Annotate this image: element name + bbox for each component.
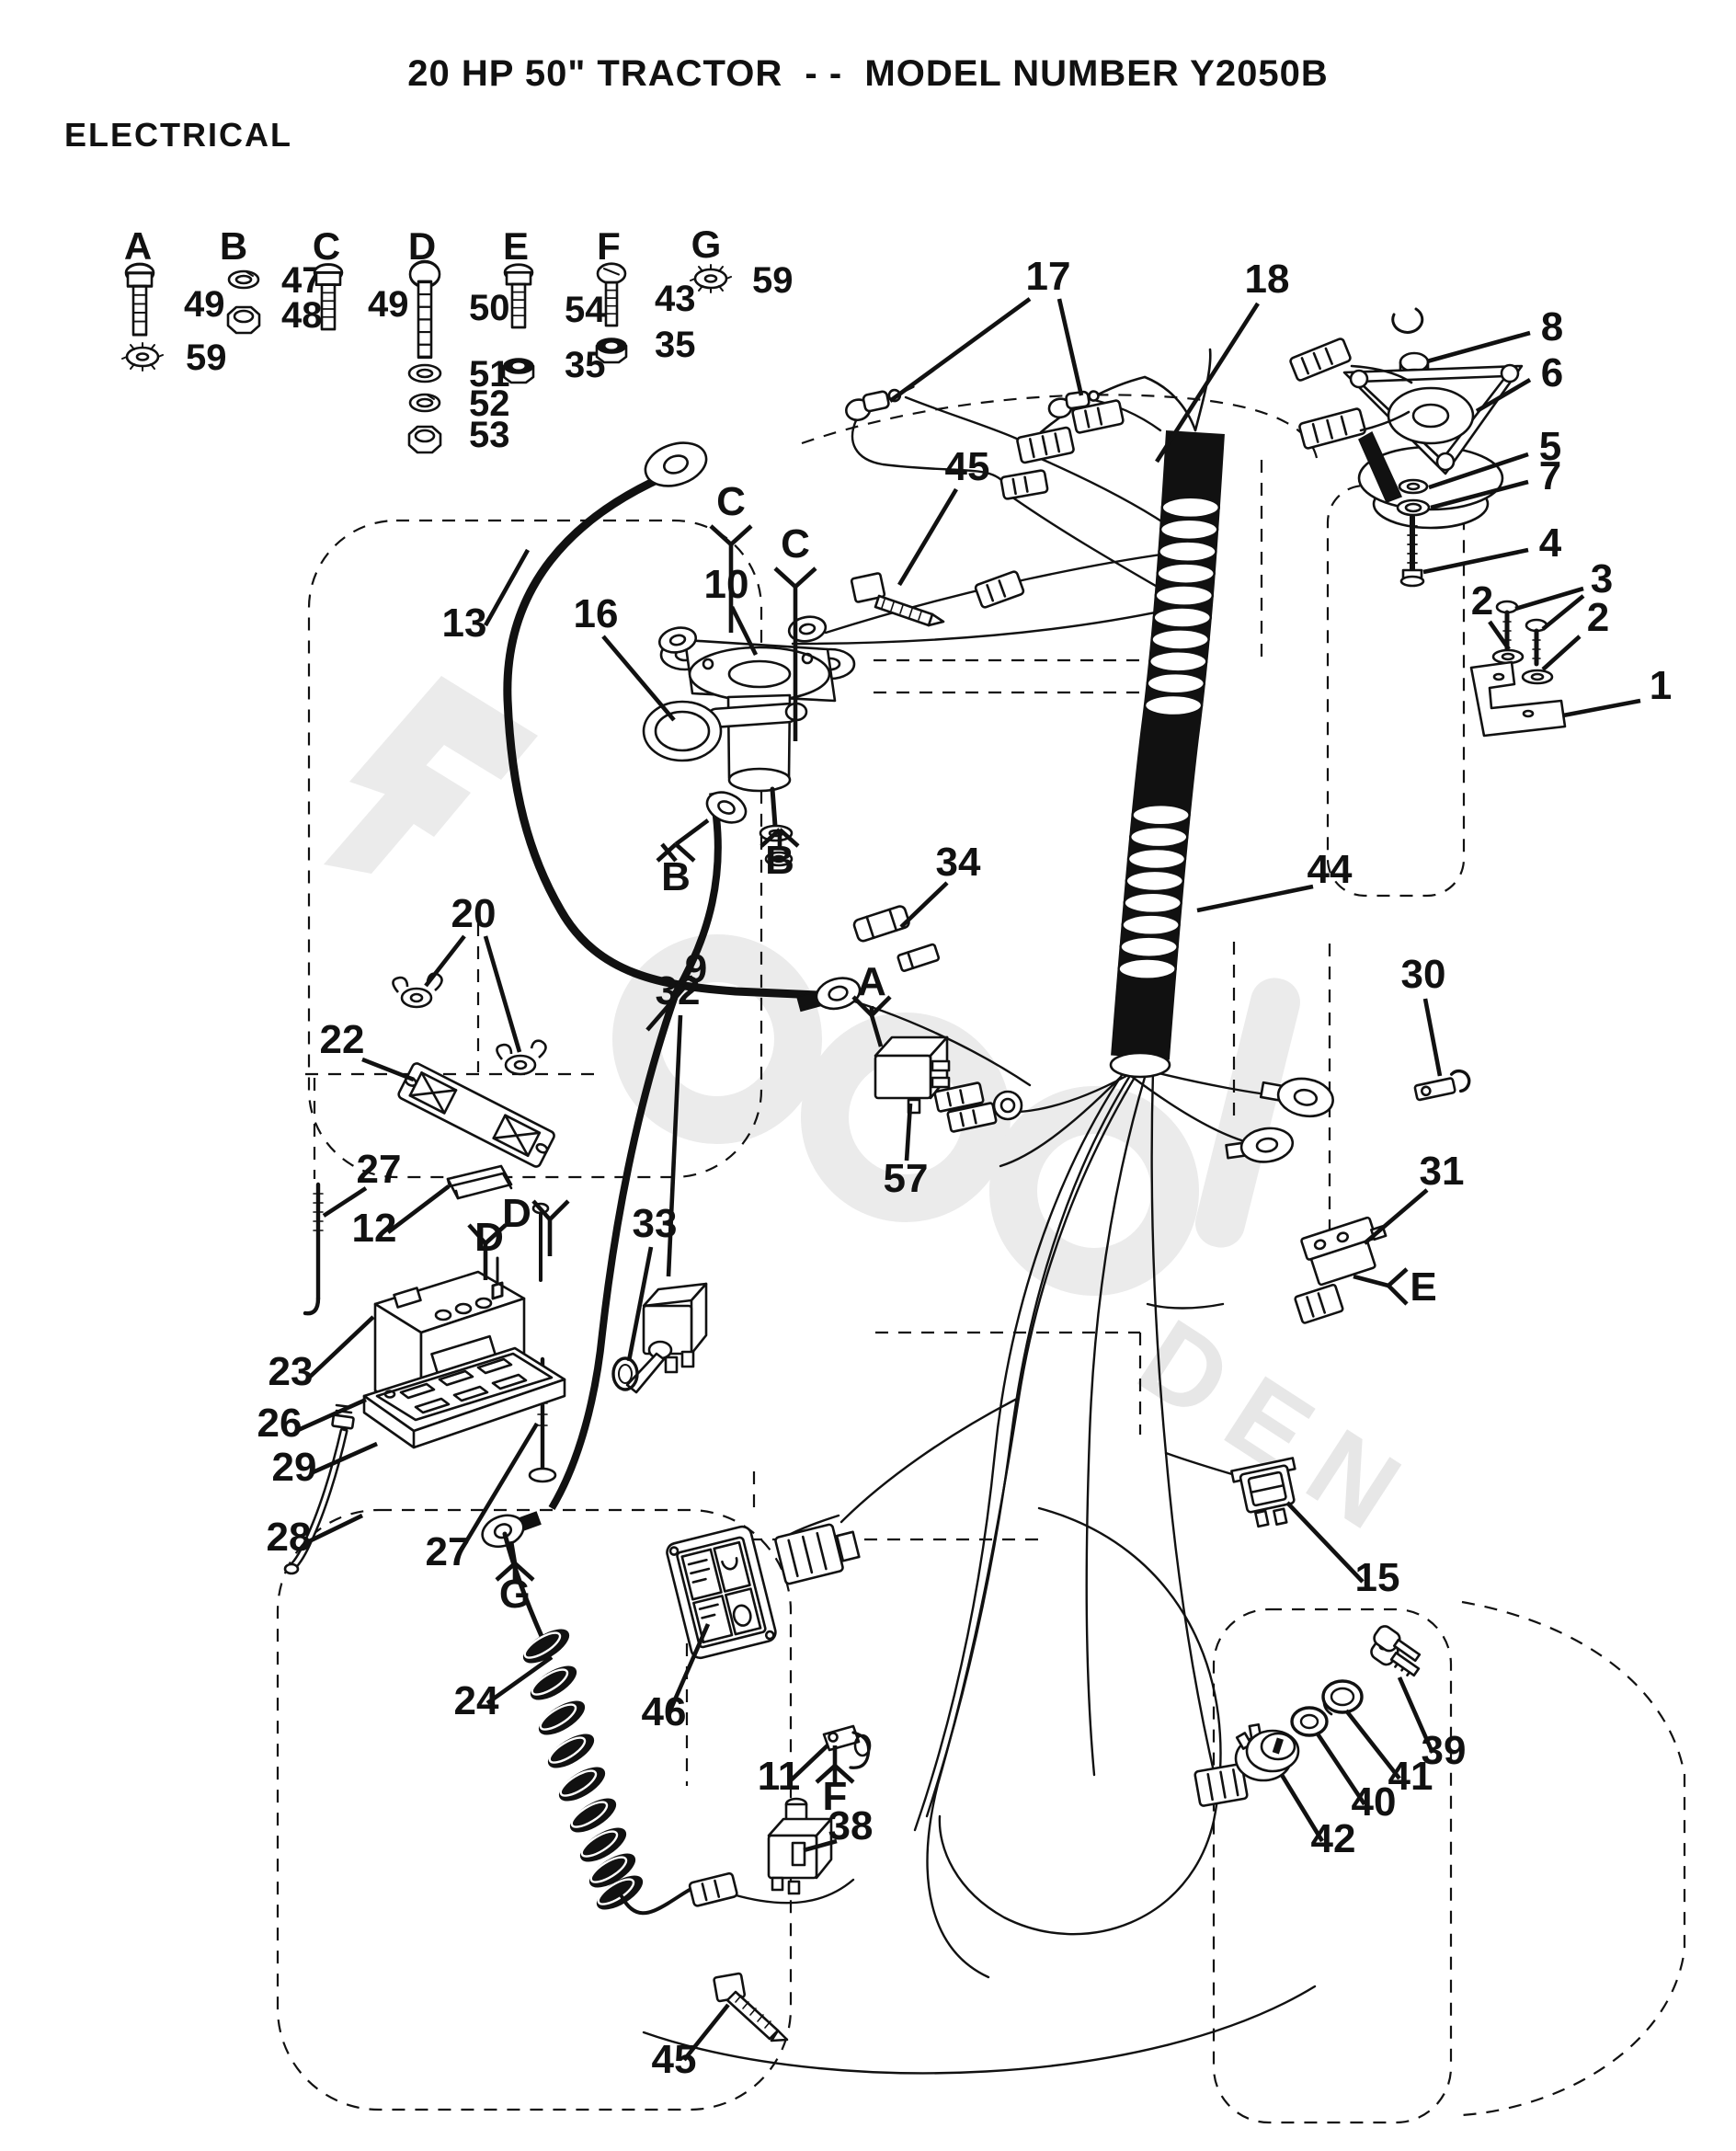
tube-rib — [1152, 629, 1209, 649]
callout-16: 16 — [574, 591, 619, 636]
parts-diagram-page: 20 HP 50" TRACTOR - - MODEL NUMBER Y2050… — [0, 0, 1736, 2151]
callout-leader — [1543, 636, 1580, 669]
callout-20: 20 — [451, 891, 497, 936]
legend-icon-lockwasher — [410, 395, 440, 411]
callout-34: 34 — [936, 840, 981, 885]
legend-part-number: 59 — [752, 260, 794, 301]
callout-13: 13 — [442, 601, 487, 646]
callout-2: 2 — [1587, 595, 1609, 640]
toggle-switch — [613, 1284, 706, 1392]
marker-C: C — [781, 521, 810, 566]
harness-tube — [1041, 349, 1219, 1077]
callout-28: 28 — [267, 1515, 312, 1560]
marker-G: G — [499, 1572, 531, 1617]
legend-part-number: 59 — [186, 338, 227, 378]
callout-leader — [1365, 1190, 1427, 1243]
callout-27: 27 — [426, 1529, 471, 1574]
callout-18: 18 — [1245, 257, 1290, 302]
legend-letter-G: G — [691, 223, 722, 266]
marker-leader — [1388, 1286, 1407, 1304]
callout-2: 2 — [1471, 578, 1493, 624]
tube-rib — [1123, 915, 1180, 935]
marker-B: B — [661, 854, 691, 899]
callout-11: 11 — [758, 1754, 801, 1799]
tube-rib — [1149, 651, 1206, 671]
tube-rib — [1125, 893, 1182, 913]
tube-rib — [1162, 498, 1219, 518]
callout-leader — [1423, 550, 1528, 572]
legend-icon-carriagebolt — [410, 262, 440, 358]
marker-leader — [731, 526, 751, 544]
coil-loop — [543, 1728, 599, 1774]
callout-8: 8 — [1541, 304, 1563, 349]
callout-23: 23 — [268, 1349, 314, 1394]
marker-leader — [795, 568, 816, 587]
tube-rib — [1148, 673, 1205, 693]
callout-39: 39 — [1422, 1728, 1467, 1773]
callout-22: 22 — [320, 1017, 365, 1062]
diagram-canvas: DEN — [0, 0, 1736, 2151]
marker-leader — [775, 568, 795, 587]
legend-part-number: 54 — [565, 290, 606, 330]
tube-rib — [1156, 586, 1213, 606]
tube-rib — [1158, 564, 1215, 584]
legend-letter-A: A — [124, 224, 152, 268]
legend-letter-B: B — [220, 224, 247, 268]
marker-D: D — [502, 1191, 531, 1236]
callout-29: 29 — [272, 1445, 317, 1490]
tube-rib — [1159, 542, 1216, 562]
tube-rib — [1126, 871, 1183, 891]
callout-32: 32 — [656, 968, 701, 1013]
callout-leader — [907, 1104, 910, 1161]
callout-leader — [890, 299, 1030, 401]
tube-rib — [1128, 849, 1185, 869]
callout-33: 33 — [633, 1201, 678, 1246]
legend-part-number: 35 — [655, 325, 696, 365]
callout-leader — [388, 1186, 449, 1232]
cable-tie-upper — [851, 573, 943, 625]
legend-icon-starwasher — [691, 265, 731, 292]
callout-42: 42 — [1311, 1816, 1356, 1861]
legend-icon-flangenut — [504, 359, 533, 383]
callout-44: 44 — [1308, 847, 1353, 892]
tube-rib — [1133, 805, 1190, 825]
callout-7: 7 — [1539, 453, 1561, 498]
marker-E: E — [1410, 1264, 1436, 1310]
callout-24: 24 — [454, 1678, 499, 1723]
interlock-switch-31 — [1278, 1214, 1404, 1323]
tube-rib — [1160, 520, 1217, 540]
legend-icon-hexnut — [409, 427, 440, 452]
legend-part-number: 48 — [281, 295, 323, 336]
callout-12: 12 — [352, 1206, 397, 1251]
marker-F: F — [823, 1774, 848, 1819]
callout-leader — [1563, 701, 1640, 715]
callout-leader — [899, 489, 956, 585]
callout-leader — [1425, 999, 1440, 1076]
ignition-module — [665, 1525, 777, 1660]
hour-meter-clamp — [824, 1726, 870, 1768]
legend-icon-hexbolt — [126, 264, 154, 335]
marker-C: C — [716, 479, 746, 524]
callout-leader — [426, 936, 464, 986]
callout-leader — [1059, 299, 1081, 395]
marker-leader — [1388, 1269, 1407, 1286]
marker-leader — [550, 1201, 568, 1219]
callout-leader — [296, 1400, 366, 1431]
legend-icon-lockwasher — [229, 271, 258, 288]
callout-45: 45 — [945, 444, 990, 489]
legend-letter-C: C — [313, 224, 340, 268]
legend-icon-flatwasher — [409, 365, 440, 382]
j-bolt — [305, 1184, 323, 1313]
tube-rib — [1130, 827, 1187, 847]
tube-rib — [1154, 607, 1211, 627]
callout-leader — [901, 883, 947, 927]
callout-leader — [307, 1317, 373, 1379]
legend-part-number: 53 — [469, 415, 510, 455]
coil-loop — [534, 1695, 589, 1741]
legend-letter-F: F — [597, 224, 621, 268]
marker-D: D — [474, 1215, 504, 1260]
callout-27: 27 — [357, 1147, 402, 1192]
marker-leader — [676, 820, 708, 844]
callout-31: 31 — [1420, 1149, 1465, 1194]
callout-leader — [485, 936, 520, 1052]
battery-holddown — [397, 1062, 555, 1169]
clip — [1413, 1070, 1471, 1101]
callout-4: 4 — [1539, 521, 1562, 566]
callout-leader — [1197, 887, 1313, 910]
callout-leader — [362, 1059, 414, 1080]
marker-B: B — [765, 838, 794, 883]
callout-46: 46 — [642, 1689, 687, 1734]
legend-icon-flangenut — [597, 338, 626, 362]
legend-icon-hexnut — [228, 307, 259, 333]
bullet-terminals — [844, 385, 1101, 422]
legend-part-number: 43 — [655, 279, 696, 319]
marker-leader — [711, 526, 731, 544]
wing-nuts — [393, 974, 545, 1074]
callout-17: 17 — [1026, 254, 1071, 299]
callout-57: 57 — [884, 1156, 929, 1201]
marker-leader — [1353, 1276, 1388, 1286]
callout-26: 26 — [257, 1401, 303, 1446]
legend-letter-E: E — [503, 224, 529, 268]
legend-part-number: 50 — [469, 288, 510, 328]
callout-leader — [1427, 333, 1530, 361]
tube-rib — [1119, 959, 1176, 979]
tube-rib — [1145, 695, 1202, 715]
legend-icon-starwasher — [122, 343, 163, 371]
callout-1: 1 — [1650, 663, 1672, 708]
callout-45: 45 — [652, 2037, 697, 2082]
legend-part-number: 49 — [184, 284, 225, 325]
tube-rib — [1121, 937, 1178, 957]
marker-A: A — [857, 959, 886, 1004]
callout-10: 10 — [704, 562, 749, 607]
callout-6: 6 — [1541, 350, 1563, 395]
callout-15: 15 — [1355, 1555, 1400, 1600]
electric-clutch — [1289, 309, 1522, 528]
callout-30: 30 — [1401, 952, 1446, 997]
fastener-legend: A4959B4748C49D50515253E5435F4335G59 — [122, 223, 794, 455]
legend-part-number: 49 — [368, 284, 409, 325]
coil-loop — [526, 1660, 581, 1706]
module-connector — [775, 1519, 862, 1585]
